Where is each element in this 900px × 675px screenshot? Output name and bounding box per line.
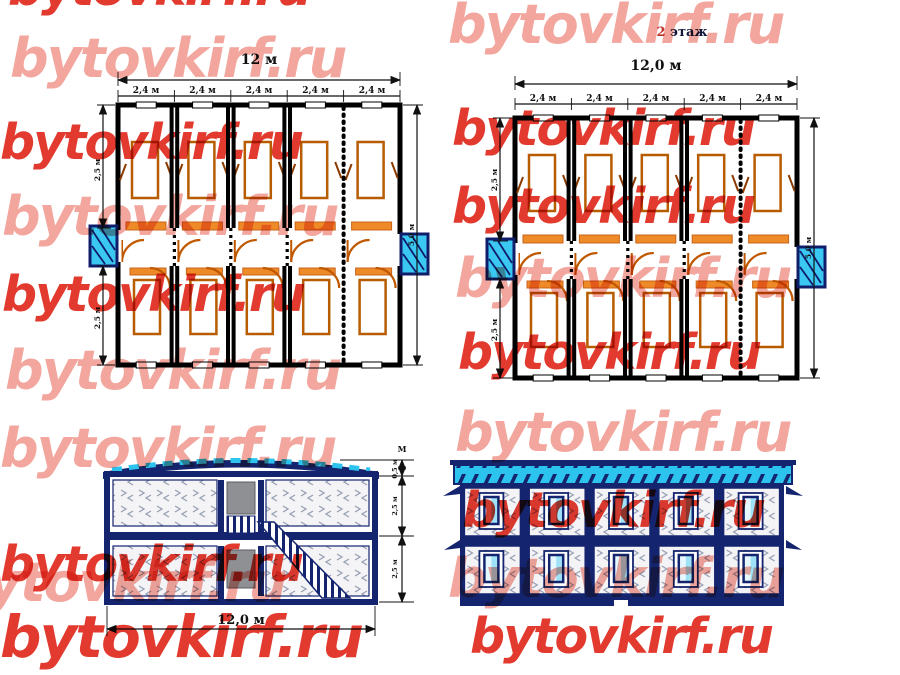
- svg-text:5,0 м: 5,0 м: [407, 223, 416, 246]
- svg-text:2,4 м: 2,4 м: [530, 94, 557, 104]
- plan2-title: 2 этаж: [656, 25, 707, 40]
- plan2-total-dim-label: 12,0 м: [630, 58, 681, 74]
- section-bottom-dim: 12,0 м: [107, 606, 375, 636]
- plan1-total-dim-label: 12 м: [241, 52, 278, 68]
- svg-text:2,4 м: 2,4 м: [756, 94, 783, 104]
- svg-text:2,4 м: 2,4 м: [246, 86, 273, 96]
- svg-text:2,4 м: 2,4 м: [133, 86, 160, 96]
- svg-text:М: М: [398, 444, 407, 454]
- svg-text:2,4 м: 2,4 м: [586, 94, 613, 104]
- svg-text:2,5 м: 2,5 м: [490, 168, 499, 191]
- first-floor-plan-drawing: 12 м 2,4 м 2,4 м 2,4 м 2,4 м 2,4 м 2,5: [85, 48, 435, 388]
- svg-text:2,5 м: 2,5 м: [93, 306, 102, 329]
- svg-text:12,0 м: 12,0 м: [217, 613, 264, 628]
- svg-text:2,4 м: 2,4 м: [643, 94, 670, 104]
- svg-text:2,4 м: 2,4 м: [699, 94, 726, 104]
- drawing-canvas: 12 м 2,4 м 2,4 м 2,4 м 2,4 м 2,4 м 2,5: [0, 0, 900, 675]
- upper-door: [227, 482, 255, 514]
- svg-text:2,5 м: 2,5 м: [391, 559, 399, 579]
- svg-text:2,5 м: 2,5 м: [490, 318, 499, 341]
- plan1-segment-dims: 2,4 м 2,4 м 2,4 м 2,4 м 2,4 м: [118, 86, 400, 102]
- svg-text:2,4 м: 2,4 м: [359, 86, 386, 96]
- svg-text:2,4 м: 2,4 м: [302, 86, 329, 96]
- plan2-segment-dims: 2,4 м 2,4 м 2,4 м 2,4 м 2,4 м: [515, 94, 797, 110]
- second-floor-plan: [487, 115, 825, 381]
- svg-text:2,5 м: 2,5 м: [93, 158, 102, 181]
- lower-door: [227, 550, 255, 588]
- second-floor-plan-drawing: 2 этаж 12,0 м 2,4 м 2,4 м 2,4 м 2,4 м 2,…: [480, 18, 855, 410]
- svg-text:2,5 м: 2,5 м: [391, 496, 399, 516]
- stair-railing: [227, 516, 255, 533]
- svg-text:2,4 м: 2,4 м: [189, 86, 216, 96]
- facade-drawing: [442, 452, 804, 614]
- svg-text:5,0 м: 5,0 м: [804, 236, 813, 259]
- cross-section-drawing: 12,0 м М 0,5 м 2,5 м 2,5 м: [100, 438, 432, 650]
- watermark-text: bytovkirf.ru: [8, 0, 310, 13]
- svg-text:0,5 м: 0,5 м: [391, 459, 399, 479]
- first-floor-plan: [90, 102, 428, 368]
- watermark-text: bytovkirf.ru: [470, 612, 772, 661]
